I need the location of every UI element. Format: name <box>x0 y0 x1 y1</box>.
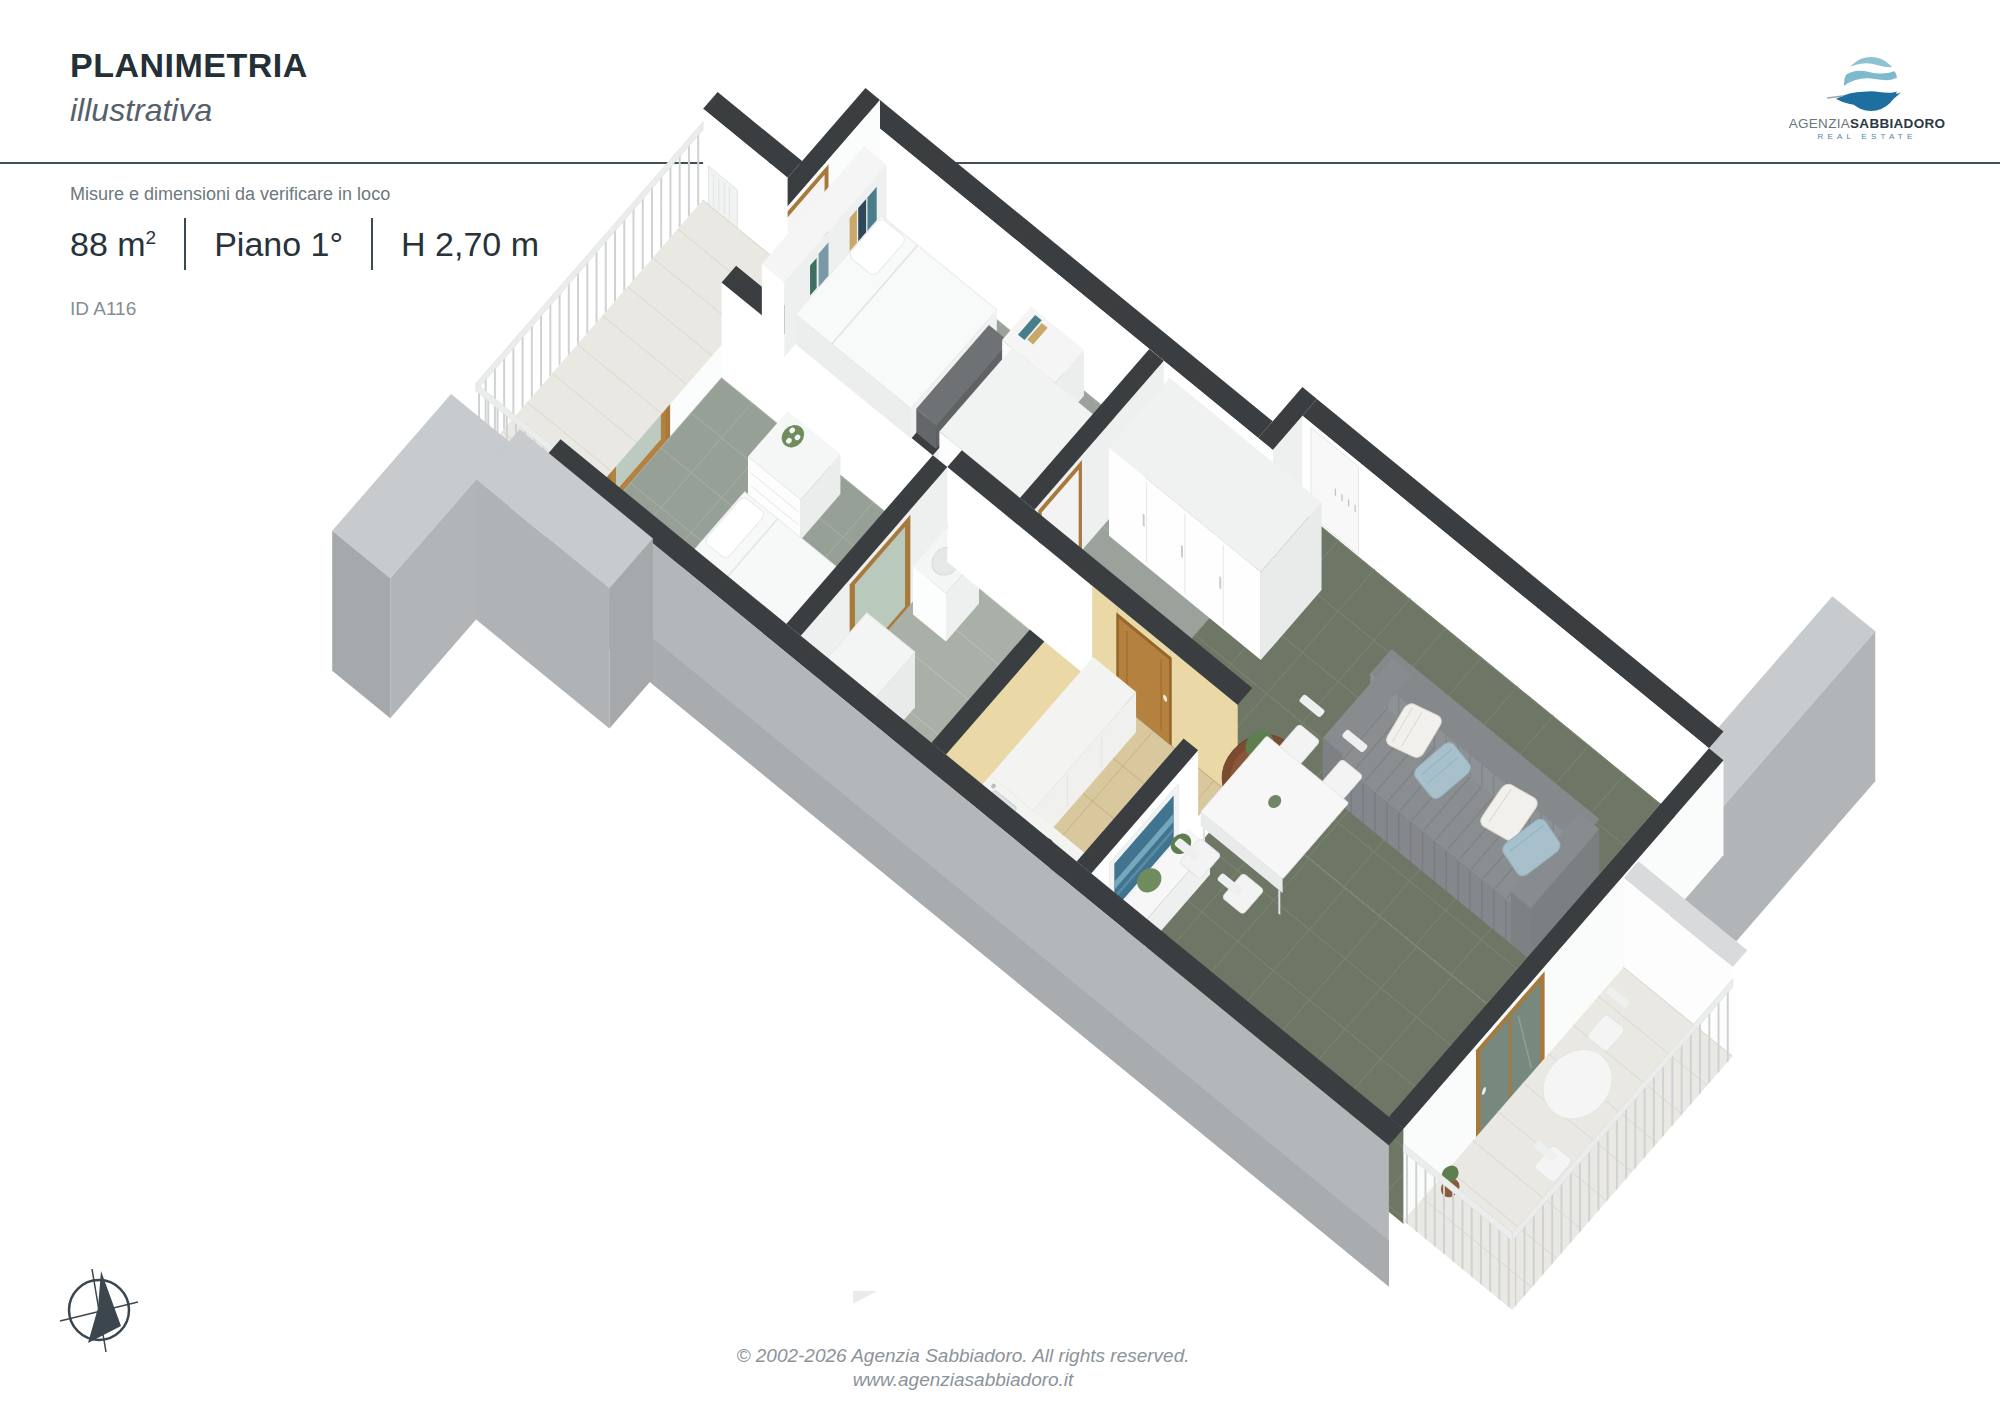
footer-copyright: © 2002-2026 Agenzia Sabbiadoro. All righ… <box>0 1344 2000 1392</box>
logo-globe-icon <box>1827 56 1907 114</box>
copyright-line: © 2002-2026 Agenzia Sabbiadoro. All righ… <box>0 1344 1926 1368</box>
render-artifact <box>853 1291 877 1304</box>
agency-logo: AGENZIASABBIADORO REAL ESTATE <box>1772 56 1962 141</box>
floor-plan-illustration <box>0 0 2000 1414</box>
logo-tagline: REAL ESTATE <box>1772 132 1962 141</box>
floorplan-page: PLANIMETRIA illustrativa Misure e dimens… <box>0 0 2000 1414</box>
website-line: www.agenziasabbiadoro.it <box>0 1368 1926 1392</box>
logo-wordmark: AGENZIASABBIADORO <box>1772 116 1962 131</box>
